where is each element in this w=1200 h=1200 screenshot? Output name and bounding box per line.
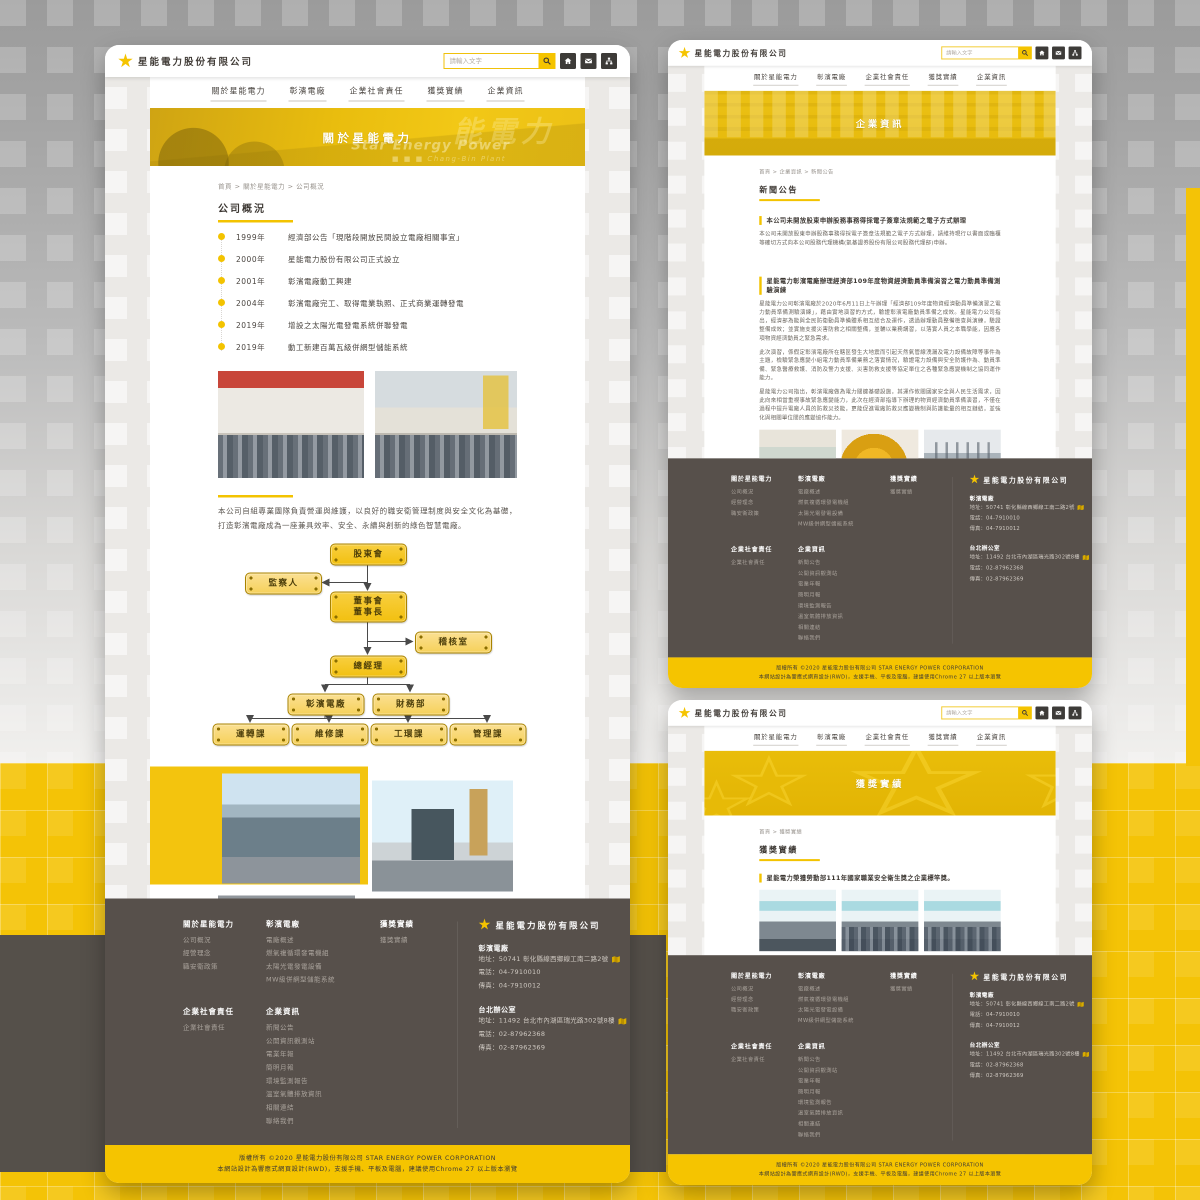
header-actions (941, 706, 1081, 719)
nav-item[interactable]: 彰濱電廠 (288, 84, 326, 102)
sitemap-button[interactable] (1069, 706, 1082, 719)
map-icon[interactable] (1077, 1002, 1083, 1007)
copyright-line1: 版權所有 ©2020 星能電力股份有限公司 STAR ENERGY POWER … (668, 1160, 1092, 1169)
history-photos (218, 371, 517, 478)
nav-item[interactable]: 企業社會責任 (865, 71, 910, 85)
news-item: 星能電力彰濱電廠辦理經濟部109年度物資經濟動員準備演習之電力動員準備測驗演練 … (759, 276, 1000, 458)
footer-company-name: 星能電力股份有限公司 (983, 474, 1068, 484)
news-body: 星能電力公司彰濱電廠於2020年6月11日上午辦理「經濟部109年度物資經濟動員… (759, 299, 1000, 422)
footer-col-csr: 企業社會責任企業社會責任 (183, 1006, 258, 1128)
mail-icon (584, 57, 593, 66)
nav-item[interactable]: 彰濱電廠 (816, 731, 847, 745)
footer-link[interactable]: 相關連結 (798, 1119, 884, 1130)
plant-photo-collage (150, 758, 585, 898)
footer-col-title: 關於星能電力 (183, 918, 258, 929)
footer-link[interactable]: 經營理念 (731, 994, 792, 1005)
footer-link[interactable]: MW級併網型儲能系統 (266, 974, 372, 987)
org-box-shareholders: 股東會 (330, 543, 407, 565)
footer-col-title: 彰濱電廠 (266, 918, 372, 929)
nav-item[interactable]: 關於星能電力 (753, 731, 798, 745)
nav-item[interactable]: 企業資訊 (976, 731, 1007, 745)
footer-col-title: 企業社會責任 (731, 1042, 792, 1050)
footer-link[interactable]: 環境監測報告 (798, 601, 884, 612)
home-icon (1038, 709, 1045, 716)
timeline-dot (218, 277, 225, 284)
footer-link[interactable]: 溫室氣體排放資訊 (798, 612, 884, 623)
footer-col-csr: 企業社會責任企業社會責任 (731, 1042, 792, 1141)
footer-link[interactable]: 企業社會責任 (731, 1055, 792, 1066)
site-header: 星能電力股份有限公司 (105, 45, 630, 77)
footer-link[interactable]: 新聞公告 (798, 1055, 884, 1066)
timeline-dot (218, 299, 225, 306)
footer-plant-tel: 電話：04-7910010 (970, 1010, 1089, 1021)
yellow-decor-strip (1186, 188, 1200, 766)
nav-item[interactable]: 企業資訊 (487, 84, 525, 102)
star-logo-icon (970, 475, 980, 485)
footer-col-info: 企業資訊新聞公告公開資訊觀測站電業年報簡明月報環境監測報告溫室氣體排放資訊相關連… (798, 545, 884, 644)
footer-plant-title: 彰濱電廠 (970, 991, 1089, 999)
footer-link[interactable]: 公司概況 (731, 984, 792, 995)
map-icon[interactable] (618, 1018, 626, 1025)
footer-col-awards: 獲獎實績獲獎實績 (380, 918, 440, 987)
footer-link[interactable]: 職安衛政策 (183, 960, 258, 973)
timeline-text: 彰濱電廠完工、取得電業執照、正式商業運轉發電 (288, 298, 464, 309)
timeline-dot (218, 255, 225, 262)
footer-company-name: 星能電力股份有限公司 (496, 918, 601, 931)
breadcrumb[interactable]: 首頁 > 關於星能電力 > 公司概況 (218, 181, 517, 191)
org-box-plant: 彰濱電廠 (288, 693, 365, 715)
footer-link[interactable]: 電廠概述 (266, 934, 372, 947)
footer-col-about: 關於星能電力公司概況經營理念職安衛政策 (731, 474, 792, 530)
search-icon (1021, 49, 1028, 56)
org-box-operation: 運轉課 (213, 723, 290, 745)
footer-divider (457, 921, 458, 1128)
footer-office-title: 台北辦公室 (970, 1041, 1089, 1049)
search-input[interactable] (941, 46, 1018, 59)
footer-link[interactable]: 聯絡我們 (798, 633, 884, 644)
footer-plant-tel: 電話：04-7910010 (479, 966, 627, 979)
footer-office-tel: 電話：02-87962368 (970, 1060, 1089, 1071)
footer-link[interactable]: 電業年報 (798, 579, 884, 590)
timeline-year: 2001年 (236, 276, 288, 287)
footer-link[interactable]: 溫室氣體排放資訊 (266, 1088, 372, 1101)
company-name: 星能電力股份有限公司 (138, 54, 253, 68)
gas-valve-drill-photo (842, 430, 919, 458)
home-button[interactable] (1035, 46, 1048, 59)
copyright-bar: 版權所有 ©2020 星能電力股份有限公司 STAR ENERGY POWER … (668, 1154, 1092, 1185)
footer-link[interactable]: 環境監測報告 (266, 1075, 372, 1088)
timeline-row: 2000年星能電力股份有限公司正式設立 (218, 254, 517, 276)
map-icon[interactable] (1083, 1052, 1089, 1057)
main-nav: 關於星能電力彰濱電廠企業社會責任獲獎實績企業資訊 (704, 726, 1055, 751)
footer-link[interactable]: 環境監測報告 (798, 1098, 884, 1109)
main-nav: 關於星能電力彰濱電廠企業社會責任獲獎實績企業資訊 (704, 66, 1055, 91)
footer-contact: 星能電力股份有限公司 彰濱電廠 地址：50741 彰化縣線西鄉線工南二路2號 電… (970, 971, 1089, 1140)
plant-visit-group-photo (375, 371, 517, 478)
banner-overlay-en2: ■ ■ ■ Chang-Bin Plant (392, 155, 506, 163)
footer-col-csr: 企業社會責任企業社會責任 (731, 545, 792, 644)
equipment-repair-photo (924, 430, 1001, 458)
footer-office-fax: 傳真：02-87962369 (970, 1071, 1089, 1082)
footer-link[interactable]: 經營理念 (183, 947, 258, 960)
star-logo-icon (118, 54, 133, 69)
footer-col-title: 彰濱電廠 (798, 474, 884, 482)
footer-contact: 星能電力股份有限公司 彰濱電廠 地址：50741 彰化縣線西鄉線工南二路2號 電… (970, 474, 1089, 643)
nav-item[interactable]: 企業社會責任 (865, 731, 910, 745)
org-box-supervisor: 監察人 (245, 572, 322, 594)
copyright-line2: 本網站設計為響應式網頁設計(RWD)，支援手機、平板及電腦，建議使用Chrome… (668, 672, 1092, 681)
footer-col-title: 獲獎實績 (890, 971, 938, 979)
footer-office-tel: 電話：02-87962368 (970, 563, 1089, 574)
footer-col-plant: 彰濱電廠電廠概述燃氣複循環發電機組太陽光電發電設備MW級併網型儲能系統 (266, 918, 372, 987)
footer-col-awards: 獲獎實績獲獎實績 (890, 971, 938, 1027)
footer-office-title: 台北辦公室 (479, 1005, 627, 1015)
home-button[interactable] (560, 53, 576, 69)
footer-col-awards: 獲獎實績獲獎實績 (890, 474, 938, 530)
search-input[interactable] (444, 53, 539, 69)
footer-link[interactable]: 簡明月報 (798, 1087, 884, 1098)
star-logo-icon (678, 707, 690, 719)
footer-link[interactable]: 電廠概述 (798, 487, 884, 498)
timeline-dot (218, 343, 225, 350)
footer-office-address: 地址：11492 台北市內湖區瑞光路302號8樓 (970, 552, 1089, 563)
footer-col-plant: 彰濱電廠電廠概述燃氣複循環發電機組太陽光電發電設備MW級併網型儲能系統 (798, 474, 884, 530)
news-title[interactable]: 星能電力彰濱電廠辦理經濟部109年度物資經濟動員準備演習之電力動員準備測驗演練 (759, 276, 1000, 294)
timeline-dot (218, 233, 225, 240)
award-photos (759, 890, 1000, 951)
footer-contact: 星能電力股份有限公司 彰濱電廠 地址：50741 彰化縣線西鄉線工南二路2號 電… (479, 918, 627, 1128)
sitemap-icon (1071, 49, 1078, 56)
awards-page-window: 星能電力股份有限公司 關於星能電力彰濱電廠企業社會責任獲獎實績企業資訊 (668, 700, 1092, 1185)
footer-col-title: 企業資訊 (798, 1042, 884, 1050)
home-button[interactable] (1035, 706, 1048, 719)
footer-col-title: 企業資訊 (798, 545, 884, 553)
site-header: 星能電力股份有限公司 (668, 40, 1092, 66)
org-box-board: 董事會董事長 (330, 591, 407, 622)
copyright-bar: 版權所有 ©2020 星能電力股份有限公司 STAR ENERGY POWER … (105, 1145, 630, 1183)
footer-link[interactable]: 燃氣複循環發電機組 (798, 498, 884, 509)
nav-item[interactable]: 獲獎實績 (928, 731, 959, 745)
company-name: 星能電力股份有限公司 (695, 707, 788, 718)
contact-button[interactable] (1052, 46, 1065, 59)
footer-link[interactable]: 太陽光電發電設備 (798, 1005, 884, 1016)
footer-plant-fax: 傳真：04-7910012 (479, 979, 627, 992)
nav-item[interactable]: 獲獎實績 (427, 84, 465, 102)
footer-link[interactable]: 電業年報 (266, 1048, 372, 1061)
drill-lineup-photo (759, 430, 836, 458)
footer-office-address: 地址：11492 台北市內湖區瑞光路302號8樓 (479, 1015, 627, 1028)
nav-item[interactable]: 獲獎實績 (928, 71, 959, 85)
footer-link[interactable]: 新聞公告 (798, 558, 884, 569)
footer-link[interactable]: 溫室氣體排放資訊 (798, 1108, 884, 1119)
footer-link[interactable]: 公開資訊觀測站 (798, 568, 884, 579)
timeline-row: 2004年彰濱電廠完工、取得電業執照、正式商業運轉發電 (218, 298, 517, 320)
main-nav: 關於星能電力彰濱電廠企業社會責任獲獎實績企業資訊 (150, 77, 585, 108)
about-page-window: 星能電力股份有限公司 關於星能電力彰濱電廠企業社會責任獲獎實績企業資訊 能電力 … (105, 45, 630, 1183)
footer-link[interactable]: 職安衛政策 (731, 508, 792, 519)
footer-link[interactable]: 企業社會責任 (731, 558, 792, 569)
footer-link-columns: 關於星能電力公司概況經營理念職安衛政策 彰濱電廠電廠概述燃氣複循環發電機組太陽光… (731, 474, 939, 643)
org-chart: 股東會 監察人 董事會董事長 稽核室 總經理 彰濱電廠 財務部 運轉課 維修課 … (208, 543, 528, 745)
sitemap-icon (1071, 709, 1078, 716)
breadcrumb[interactable]: 首頁 > 獲獎實績 (759, 828, 1000, 836)
footer-plant-tel: 電話：04-7910010 (970, 513, 1089, 524)
search-box (444, 53, 556, 69)
sitemap-icon (605, 57, 614, 66)
page-banner: 能電力 關於星能電力 Star Energy Power ■ ■ ■ Chang… (150, 108, 585, 166)
org-box-audit: 稽核室 (415, 631, 492, 653)
news-paragraph: 星能電力公司指出，彰濱電廠做為電力關鍵基礎設施，其運作攸關國家安全與人民生活需求… (759, 388, 1000, 423)
timeline-row: 2019年動工新建百萬瓦級併網型儲能系統 (218, 342, 517, 364)
footer-plant-title: 彰濱電廠 (479, 943, 627, 953)
footer-link[interactable]: 電業年報 (798, 1076, 884, 1087)
star-logo-icon (678, 47, 690, 59)
site-header: 星能電力股份有限公司 (668, 700, 1092, 726)
footer-link[interactable]: 新聞公告 (266, 1022, 372, 1035)
nav-item[interactable]: 關於星能電力 (753, 71, 798, 85)
timeline-year: 1999年 (236, 232, 288, 243)
org-box-maintenance: 維修課 (292, 723, 369, 745)
company-timeline: 1999年經濟部公告「現階段開放民間設立電廠相關事宜」 2000年星能電力股份有… (218, 232, 517, 364)
footer-link[interactable]: 燃氣複循環發電機組 (798, 994, 884, 1005)
timeline-dot (218, 321, 225, 328)
timeline-row: 1999年經濟部公告「現階段開放民間設立電廠相關事宜」 (218, 232, 517, 254)
search-icon (543, 57, 552, 66)
footer-link[interactable]: 公開資訊觀測站 (798, 1065, 884, 1076)
map-icon[interactable] (1083, 555, 1089, 560)
power-plant-stack-photo (372, 780, 513, 891)
search-input[interactable] (941, 706, 1018, 719)
site-footer: 關於星能電力公司概況經營理念職安衛政策 彰濱電廠電廠概述燃氣複循環發電機組太陽光… (105, 898, 630, 1145)
nav-item[interactable]: 企業社會責任 (348, 84, 404, 102)
site-footer: 關於星能電力公司概況經營理念職安衛政策 彰濱電廠電廠概述燃氣複循環發電機組太陽光… (668, 955, 1092, 1154)
org-box-administration: 管理課 (450, 723, 527, 745)
footer-col-title: 企業社會責任 (183, 1006, 258, 1017)
contact-button[interactable] (1052, 706, 1065, 719)
footer-col-title: 關於星能電力 (731, 971, 792, 979)
footer-link[interactable]: 經營理念 (731, 498, 792, 509)
design-canvas: 星能電力股份有限公司 關於星能電力彰濱電廠企業社會責任獲獎實績企業資訊 能電力 … (0, 0, 1200, 1200)
company-name: 星能電力股份有限公司 (695, 47, 788, 58)
footer-link[interactable]: 簡明月報 (798, 590, 884, 601)
footer-plant-fax: 傳真：04-7910012 (970, 524, 1089, 535)
footer-link[interactable]: 公司概況 (731, 487, 792, 498)
news-title[interactable]: 本公司未開放股東申辦股務事務得採電子簽章法規範之電子方式辦理 (759, 216, 1000, 225)
footer-link[interactable]: 聯絡我們 (798, 1130, 884, 1141)
page-title: 獲獎實績 (704, 776, 1055, 790)
header-actions (444, 53, 618, 69)
news-paragraph: 此次演習，係假定彰濱電廠所在轄區發生大地震而引起天然氣管線洩漏及電力設備故障等事… (759, 348, 1000, 383)
timeline-text: 動工新建百萬瓦級併網型儲能系統 (288, 342, 408, 353)
star-logo-icon (970, 971, 980, 981)
footer-office-title: 台北辦公室 (970, 544, 1089, 552)
section-title: 獲獎實績 (759, 843, 1000, 855)
org-box-general-manager: 總經理 (330, 655, 407, 677)
mail-icon (1055, 709, 1062, 716)
search-button[interactable] (1018, 46, 1032, 59)
footer-office-fax: 傳真：02-87962369 (479, 1041, 627, 1054)
nav-item[interactable]: 彰濱電廠 (816, 71, 847, 85)
site-logo[interactable]: 星能電力股份有限公司 (118, 54, 253, 69)
copyright-line1: 版權所有 ©2020 星能電力股份有限公司 STAR ENERGY POWER … (668, 664, 1092, 673)
footer-link[interactable]: 公開資訊觀測站 (266, 1035, 372, 1048)
footer-brand: 星能電力股份有限公司 (479, 918, 627, 931)
header-actions (941, 46, 1081, 59)
section-title: 公司概況 (218, 201, 517, 216)
footer-col-title: 關於星能電力 (731, 474, 792, 482)
footer-link[interactable]: 獲獎實績 (380, 934, 440, 947)
copyright-line2: 本網站設計為響應式網頁設計(RWD)，支援手機、平板及電腦，建議使用Chrome… (668, 1169, 1092, 1178)
map-icon[interactable] (1077, 505, 1083, 510)
footer-col-title: 獲獎實績 (380, 918, 440, 929)
footer-col-about: 關於星能電力公司概況經營理念職安衛政策 (183, 918, 258, 987)
footer-company-name: 星能電力股份有限公司 (983, 971, 1068, 981)
search-button[interactable] (1018, 706, 1032, 719)
news-photos (759, 430, 1000, 458)
news-paragraph: 星能電力公司彰濱電廠於2020年6月11日上午辦理「經濟部109年度物資經濟動員… (759, 299, 1000, 343)
timeline-text: 增設之太陽光電發電系統併聯發電 (288, 320, 408, 331)
news-paragraph: 本公司未開放股東申辦股務事務得採電子簽章法規範之電子方式辦理，請維持現行以書面或… (759, 230, 1000, 247)
footer-link[interactable]: 燃氣複循環發電機組 (266, 947, 372, 960)
home-icon (1038, 49, 1045, 56)
site-logo[interactable]: 星能電力股份有限公司 (678, 47, 787, 59)
timeline-year: 2019年 (236, 342, 288, 353)
plant-entrance-photo (218, 895, 355, 898)
search-box (941, 706, 1031, 719)
footer-office-tel: 電話：02-87962368 (479, 1028, 627, 1041)
timeline-year: 2000年 (236, 254, 288, 265)
footer-link[interactable]: 職安衛政策 (731, 1005, 792, 1016)
footer-brand: 星能電力股份有限公司 (970, 474, 1089, 484)
turbine-hall-photo (222, 773, 360, 883)
footer-col-about: 關於星能電力公司概況經營理念職安衛政策 (731, 971, 792, 1027)
site-logo[interactable]: 星能電力股份有限公司 (678, 707, 787, 719)
page-banner: 企業資訊 (704, 91, 1055, 156)
footer-link-columns: 關於星能電力公司概況經營理念職安衛政策 彰濱電廠電廠概述燃氣複循環發電機組太陽光… (731, 971, 939, 1140)
footer-link[interactable]: MW級併網型儲能系統 (798, 519, 884, 530)
copyright-line2: 本網站設計為響應式網頁設計(RWD)，支援手機、平板及電腦，建議使用Chrome… (105, 1164, 630, 1175)
footer-col-info: 企業資訊新聞公告公開資訊觀測站電業年報簡明月報環境監測報告溫室氣體排放資訊相關連… (266, 1006, 372, 1128)
footer-plant-address: 地址：50741 彰化縣線西鄉線工南二路2號 (970, 999, 1089, 1010)
page-title: 關於星能電力 (150, 129, 585, 146)
footer-link[interactable]: 相關連結 (266, 1101, 372, 1114)
award-item: 星能電力榮獲勞動部111年國家職業安全衛生獎之企業標竿獎。 (759, 874, 1000, 952)
news-page-window: 星能電力股份有限公司 關於星能電力彰濱電廠企業社會責任獲獎實績企業資訊 企業資訊 (668, 40, 1092, 688)
timeline-row: 2019年增設之太陽光電發電系統併聯發電 (218, 320, 517, 342)
footer-link[interactable]: 太陽光電發電設備 (266, 960, 372, 973)
copyright-line1: 版權所有 ©2020 星能電力股份有限公司 STAR ENERGY POWER … (105, 1153, 630, 1164)
company-description: 本公司自組專業團隊負責營運與維護，以良好的職安衛管理制度與安全文化為基礎，打造彰… (218, 504, 517, 533)
footer-link[interactable]: 獲獎實績 (890, 487, 938, 498)
ceremony-group-photo (218, 371, 364, 478)
footer-col-info: 企業資訊新聞公告公開資訊觀測站電業年報簡明月報環境監測報告溫室氣體排放資訊相關連… (798, 1042, 884, 1141)
org-box-finance: 財務部 (373, 693, 450, 715)
section-title: 新聞公告 (759, 183, 1000, 195)
news-body: 本公司未開放股東申辦股務事務得採電子簽章法規範之電子方式辦理，請維持現行以書面或… (759, 230, 1000, 247)
footer-link[interactable]: 企業社會責任 (183, 1022, 258, 1035)
copyright-bar: 版權所有 ©2020 星能電力股份有限公司 STAR ENERGY POWER … (668, 658, 1092, 688)
footer-col-title: 企業資訊 (266, 1006, 372, 1017)
footer-col-plant: 彰濱電廠電廠概述燃氣複循環發電機組太陽光電發電設備MW級併網型儲能系統 (798, 971, 884, 1027)
nav-item[interactable]: 企業資訊 (976, 71, 1007, 85)
footer-link[interactable]: 太陽光電發電設備 (798, 508, 884, 519)
footer-col-title: 彰濱電廠 (798, 971, 884, 979)
footer-link[interactable]: 聯絡我們 (266, 1115, 372, 1128)
nav-item[interactable]: 關於星能電力 (210, 84, 266, 102)
mail-icon (1055, 49, 1062, 56)
timeline-row: 2001年彰濱電廠動工興建 (218, 276, 517, 298)
footer-link[interactable]: 電廠概述 (798, 984, 884, 995)
footer-plant-title: 彰濱電廠 (970, 494, 1089, 502)
sitemap-button[interactable] (1069, 46, 1082, 59)
news-item: 本公司未開放股東申辦股務事務得採電子簽章法規範之電子方式辦理 本公司未開放股東申… (759, 216, 1000, 247)
footer-link[interactable]: 簡明月報 (266, 1062, 372, 1075)
site-footer: 關於星能電力公司概況經營理念職安衛政策 彰濱電廠電廠概述燃氣複循環發電機組太陽光… (668, 458, 1092, 657)
footer-plant-fax: 傳真：04-7910012 (970, 1021, 1089, 1032)
award-group-stage-photo (842, 890, 919, 951)
footer-office-fax: 傳真：02-87962369 (970, 574, 1089, 585)
footer-link[interactable]: 相關連結 (798, 622, 884, 633)
map-icon[interactable] (612, 956, 620, 963)
search-button[interactable] (539, 53, 556, 69)
page-title: 企業資訊 (704, 116, 1055, 130)
footer-link-columns: 關於星能電力公司概況經營理念職安衛政策 彰濱電廠電廠概述燃氣複循環發電機組太陽光… (183, 918, 440, 1128)
timeline-year: 2019年 (236, 320, 288, 331)
footer-link[interactable]: 獲獎實績 (890, 984, 938, 995)
search-box (941, 46, 1031, 59)
timeline-text: 星能電力股份有限公司正式設立 (288, 254, 400, 265)
footer-col-title: 企業社會責任 (731, 545, 792, 553)
timeline-text: 彰濱電廠動工興建 (288, 276, 352, 287)
footer-col-title: 獲獎實績 (890, 474, 938, 482)
award-title: 星能電力榮獲勞動部111年國家職業安全衛生獎之企業標竿獎。 (759, 874, 1000, 883)
org-box-engineering: 工環課 (371, 723, 448, 745)
footer-link[interactable]: MW級併網型儲能系統 (798, 1016, 884, 1027)
contact-button[interactable] (581, 53, 597, 69)
footer-link[interactable]: 公司概況 (183, 934, 258, 947)
sitemap-button[interactable] (601, 53, 617, 69)
award-presentation-photo (759, 890, 836, 951)
award-winners-photo (924, 890, 1001, 951)
footer-brand: 星能電力股份有限公司 (970, 971, 1089, 981)
search-icon (1021, 709, 1028, 716)
timeline-text: 經濟部公告「現階段開放民間設立電廠相關事宜」 (288, 232, 464, 243)
timeline-year: 2004年 (236, 298, 288, 309)
footer-office-address: 地址：11492 台北市內湖區瑞光路302號8樓 (970, 1049, 1089, 1060)
footer-plant-address: 地址：50741 彰化縣線西鄉線工南二路2號 (970, 502, 1089, 513)
star-logo-icon (479, 919, 491, 931)
page-banner: 獲獎實績 (704, 751, 1055, 816)
footer-plant-address: 地址：50741 彰化縣線西鄉線工南二路2號 (479, 953, 627, 966)
breadcrumb[interactable]: 首頁 > 企業資訊 > 新聞公告 (759, 168, 1000, 176)
home-icon (564, 57, 573, 66)
